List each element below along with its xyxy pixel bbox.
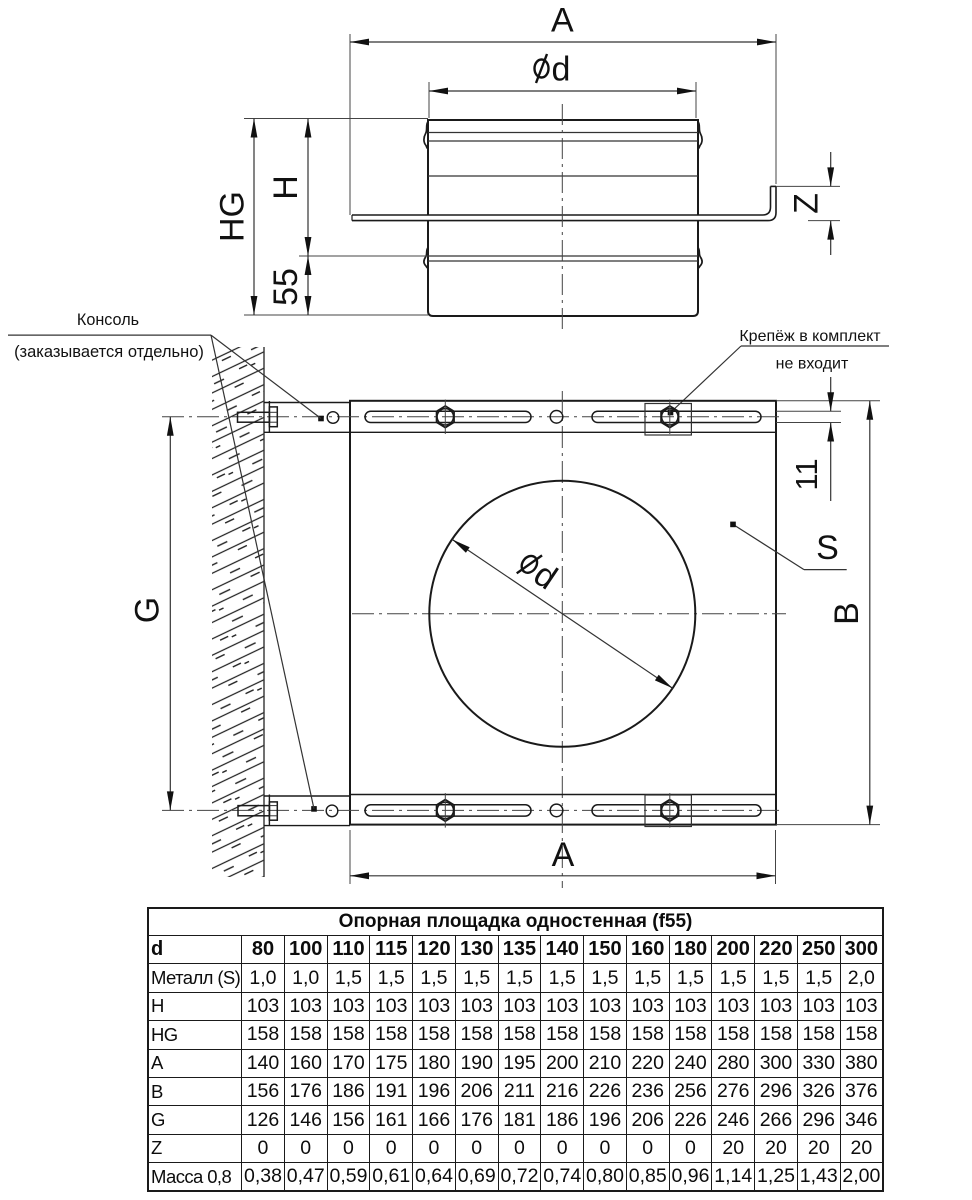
- svg-text:HG: HG: [214, 191, 252, 242]
- svg-text:A: A: [551, 2, 574, 40]
- svg-text:не входит: не входит: [776, 356, 849, 373]
- svg-text:Крепёж в комплект: Крепёж в комплект: [739, 328, 881, 345]
- svg-text:S: S: [816, 529, 839, 567]
- svg-text:G: G: [129, 597, 167, 623]
- svg-text:B: B: [828, 602, 866, 625]
- svg-text:(заказывается отдельно): (заказывается отдельно): [14, 343, 204, 361]
- svg-text:H: H: [267, 175, 305, 200]
- svg-text:11: 11: [789, 458, 824, 490]
- svg-text:Z: Z: [788, 193, 826, 214]
- svg-text:55: 55: [267, 268, 305, 306]
- svg-text:Консоль: Консоль: [77, 311, 139, 329]
- svg-text:d: d: [552, 51, 571, 89]
- svg-text:A: A: [552, 836, 575, 874]
